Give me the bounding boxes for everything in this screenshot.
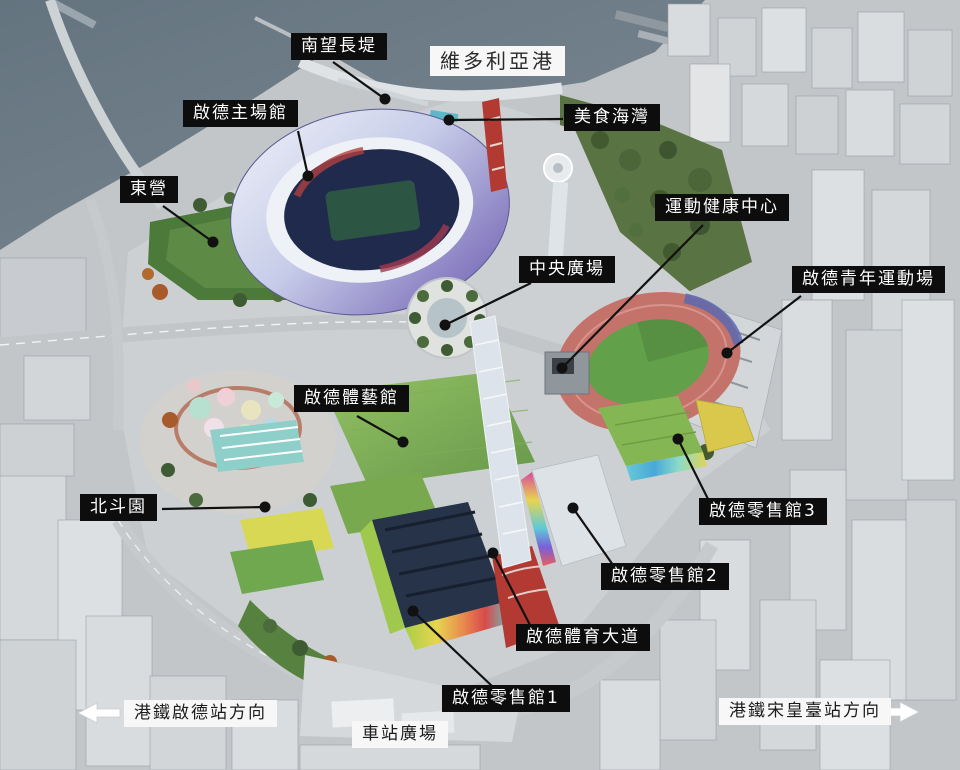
label-north-star-park: 北斗園	[80, 494, 157, 521]
label-retail1: 啟德零售館1	[442, 685, 570, 712]
label-victoria-harbour: 維多利亞港	[430, 46, 565, 76]
label-youth-sports-ground: 啟德青年運動場	[792, 266, 945, 293]
label-mtr-kai-tak: 港鐵啟德站方向	[124, 700, 277, 727]
label-retail2: 啟德零售館2	[601, 563, 729, 590]
aerial-map: 南望長堤 維多利亞港 啟德主場館 美食海灣 東營 運動健康中心 中央廣場 啟德青…	[0, 0, 960, 770]
label-arena: 啟德體藝館	[294, 385, 409, 412]
label-wellness-centre: 運動健康中心	[655, 194, 789, 221]
label-retail3: 啟德零售館3	[699, 498, 827, 525]
label-central-square: 中央廣場	[519, 256, 615, 283]
label-mtr-sung-wong-toi: 港鐵宋皇臺站方向	[719, 698, 891, 725]
label-east-lawn: 東營	[120, 176, 178, 203]
label-main-stadium: 啟德主場館	[183, 100, 298, 127]
label-breakwater: 南望長堤	[291, 33, 387, 60]
label-station-square: 車站廣場	[352, 721, 448, 748]
aerial-rendering	[0, 0, 960, 770]
label-sports-avenue: 啟德體育大道	[516, 624, 650, 651]
label-dining-cove: 美食海灣	[564, 104, 660, 131]
